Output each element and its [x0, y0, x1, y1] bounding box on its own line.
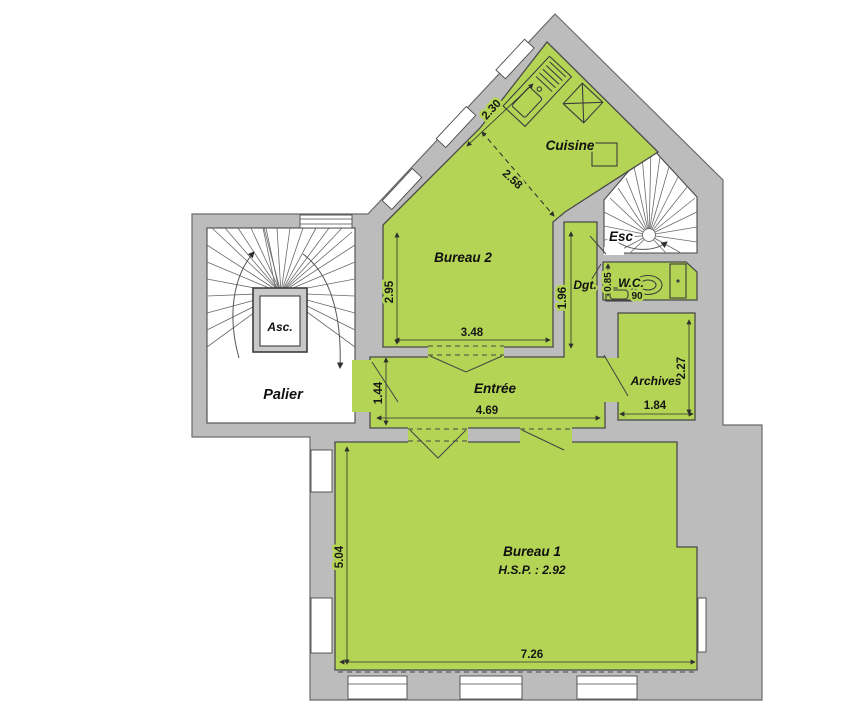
floor-plan-page: 2.30 2.58 2.95 3.48 1.96 0.85 90 2.27 1.… [0, 0, 850, 709]
dimension-dgt-length: 1.96 [557, 287, 569, 309]
room-label-esc: Esc [609, 229, 634, 244]
room-label-bureau1-hsp: H.S.P. : 2.92 [498, 563, 565, 577]
dimension-entree-depth: 1.44 [373, 381, 385, 404]
dimension-bureau2-width: 3.48 [461, 327, 484, 339]
door-opening-palier-entree [352, 360, 372, 412]
window [460, 676, 522, 699]
window [300, 215, 352, 228]
room-label-palier: Palier [263, 387, 304, 403]
door-opening-bureau2-entree [428, 342, 504, 360]
window [698, 598, 706, 652]
dimension-archives-width: 1.84 [644, 400, 667, 412]
floor-plan: 2.30 2.58 2.95 3.48 1.96 0.85 90 2.27 1.… [0, 0, 850, 709]
room-label-archives: Archives [630, 374, 682, 388]
dimension-bureau2-depth: 2.95 [384, 280, 396, 303]
room-label-cuisine: Cuisine [546, 138, 595, 153]
door-opening-entree-archives [601, 358, 620, 402]
window [577, 676, 637, 699]
room-label-dgt: Dgt. [573, 278, 596, 292]
room-label-asc: Asc. [266, 320, 292, 334]
dimension-wc-depth: 0.85 [603, 272, 614, 292]
window [348, 676, 407, 699]
room-label-entree: Entrée [474, 381, 517, 396]
dimension-bureau1-width: 7.26 [521, 649, 543, 661]
door-opening-entree-bureau1-left [408, 425, 468, 445]
room-label-wc: W.C. [618, 276, 644, 290]
window [311, 598, 332, 653]
door-opening-esc [604, 247, 624, 255]
dimension-wc-width: 90 [631, 291, 643, 302]
dimension-bureau1-depth: 5.04 [334, 545, 346, 568]
room-label-bureau2: Bureau 2 [434, 250, 492, 265]
esc-newel [643, 229, 656, 242]
dimension-entree-width: 4.69 [476, 405, 498, 417]
window [311, 450, 332, 492]
room-label-bureau1: Bureau 1 [503, 544, 561, 559]
door-opening-entree-bureau1-right [520, 425, 572, 445]
